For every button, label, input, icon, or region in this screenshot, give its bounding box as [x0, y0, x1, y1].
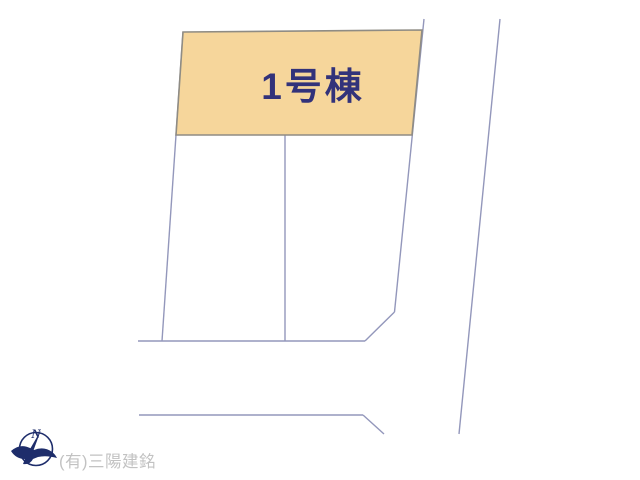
road-edge-right-line — [459, 19, 500, 434]
north-compass: N — [11, 426, 57, 466]
building-1-label: 1号棟 — [261, 66, 365, 107]
site-plan: 1号棟 N (有)三陽建銘 — [0, 0, 640, 480]
site-plan-canvas: 1号棟 N (有)三陽建銘 — [0, 0, 640, 480]
company-credit: (有)三陽建銘 — [59, 452, 156, 471]
boundary-corner-chamfer-line — [365, 312, 395, 341]
road-edge-diagonal-line — [363, 415, 384, 434]
